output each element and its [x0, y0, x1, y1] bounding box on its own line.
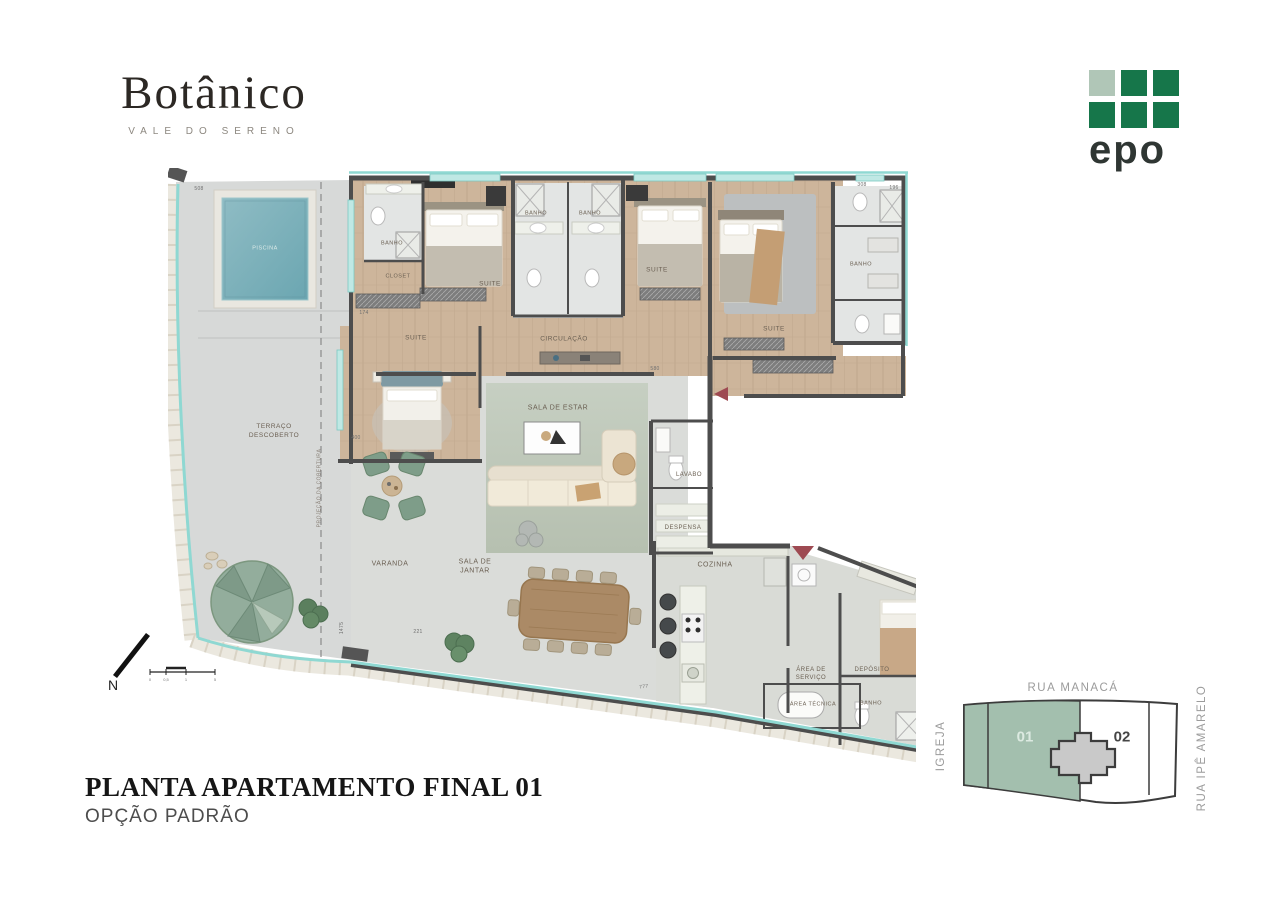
floor-plan: PISCINATERRAÇO DESCOBERTOPROJEÇÃO DA COB…	[168, 168, 916, 778]
page: Botânico VALE DO SERENO epo	[0, 0, 1280, 906]
epo-wordmark: epo	[1089, 130, 1181, 170]
epo-square	[1089, 70, 1115, 96]
site-unit-02-label: 02	[1114, 729, 1131, 746]
compass-drawing: N 0 0,5 1 5	[100, 618, 235, 700]
floor-plan-drawing	[168, 168, 916, 778]
scale-labels: 0 0,5 1 5	[149, 677, 217, 682]
corridor-console	[540, 352, 620, 364]
epo-square	[1089, 102, 1115, 128]
plan-title-main: PLANTA APARTAMENTO FINAL 01	[85, 772, 543, 803]
site-building-icon	[1051, 733, 1115, 783]
street-rua-ipe-amarelo: RUA IPÊ AMARELO	[1196, 685, 1208, 812]
site-map: RUA MANACÁ IGREJA RUA IPÊ AMARELO 01 02	[928, 672, 1218, 822]
plan-title-sub: OPÇÃO PADRÃO	[85, 806, 543, 828]
epo-square	[1121, 70, 1147, 96]
brand-name: Botânico	[84, 68, 344, 120]
plan-title: PLANTA APARTAMENTO FINAL 01 OPÇÃO PADRÃO	[85, 772, 543, 828]
compass: N 0 0,5 1 5	[100, 618, 235, 700]
epo-squares-icon	[1089, 70, 1181, 128]
compass-north-label: N	[108, 677, 118, 693]
street-igreja: IGREJA	[935, 721, 947, 772]
epo-square	[1121, 102, 1147, 128]
svg-text:5: 5	[214, 677, 217, 682]
epo-square	[1153, 102, 1179, 128]
brand-logo: Botânico VALE DO SERENO	[84, 68, 344, 137]
svg-text:1: 1	[185, 677, 188, 682]
brand-tagline: VALE DO SERENO	[84, 126, 344, 137]
common-hall	[710, 396, 910, 546]
tv-panel	[524, 422, 580, 454]
site-map-drawing	[928, 672, 1218, 822]
site-unit-01-label: 01	[1017, 729, 1034, 746]
bed-suite-3	[626, 185, 706, 300]
compass-north-icon	[113, 633, 150, 678]
bed-suite-2	[373, 371, 451, 460]
scale-bar	[150, 668, 215, 675]
epo-square	[1153, 70, 1179, 96]
svg-text:0,5: 0,5	[163, 677, 169, 682]
closet-wardrobe	[356, 294, 420, 308]
pool	[214, 190, 316, 308]
svg-text:0: 0	[149, 677, 152, 682]
epo-logo: epo	[1089, 70, 1181, 170]
street-rua-manaca: RUA MANACÁ	[1027, 682, 1118, 694]
despensa-shelves	[656, 504, 708, 548]
